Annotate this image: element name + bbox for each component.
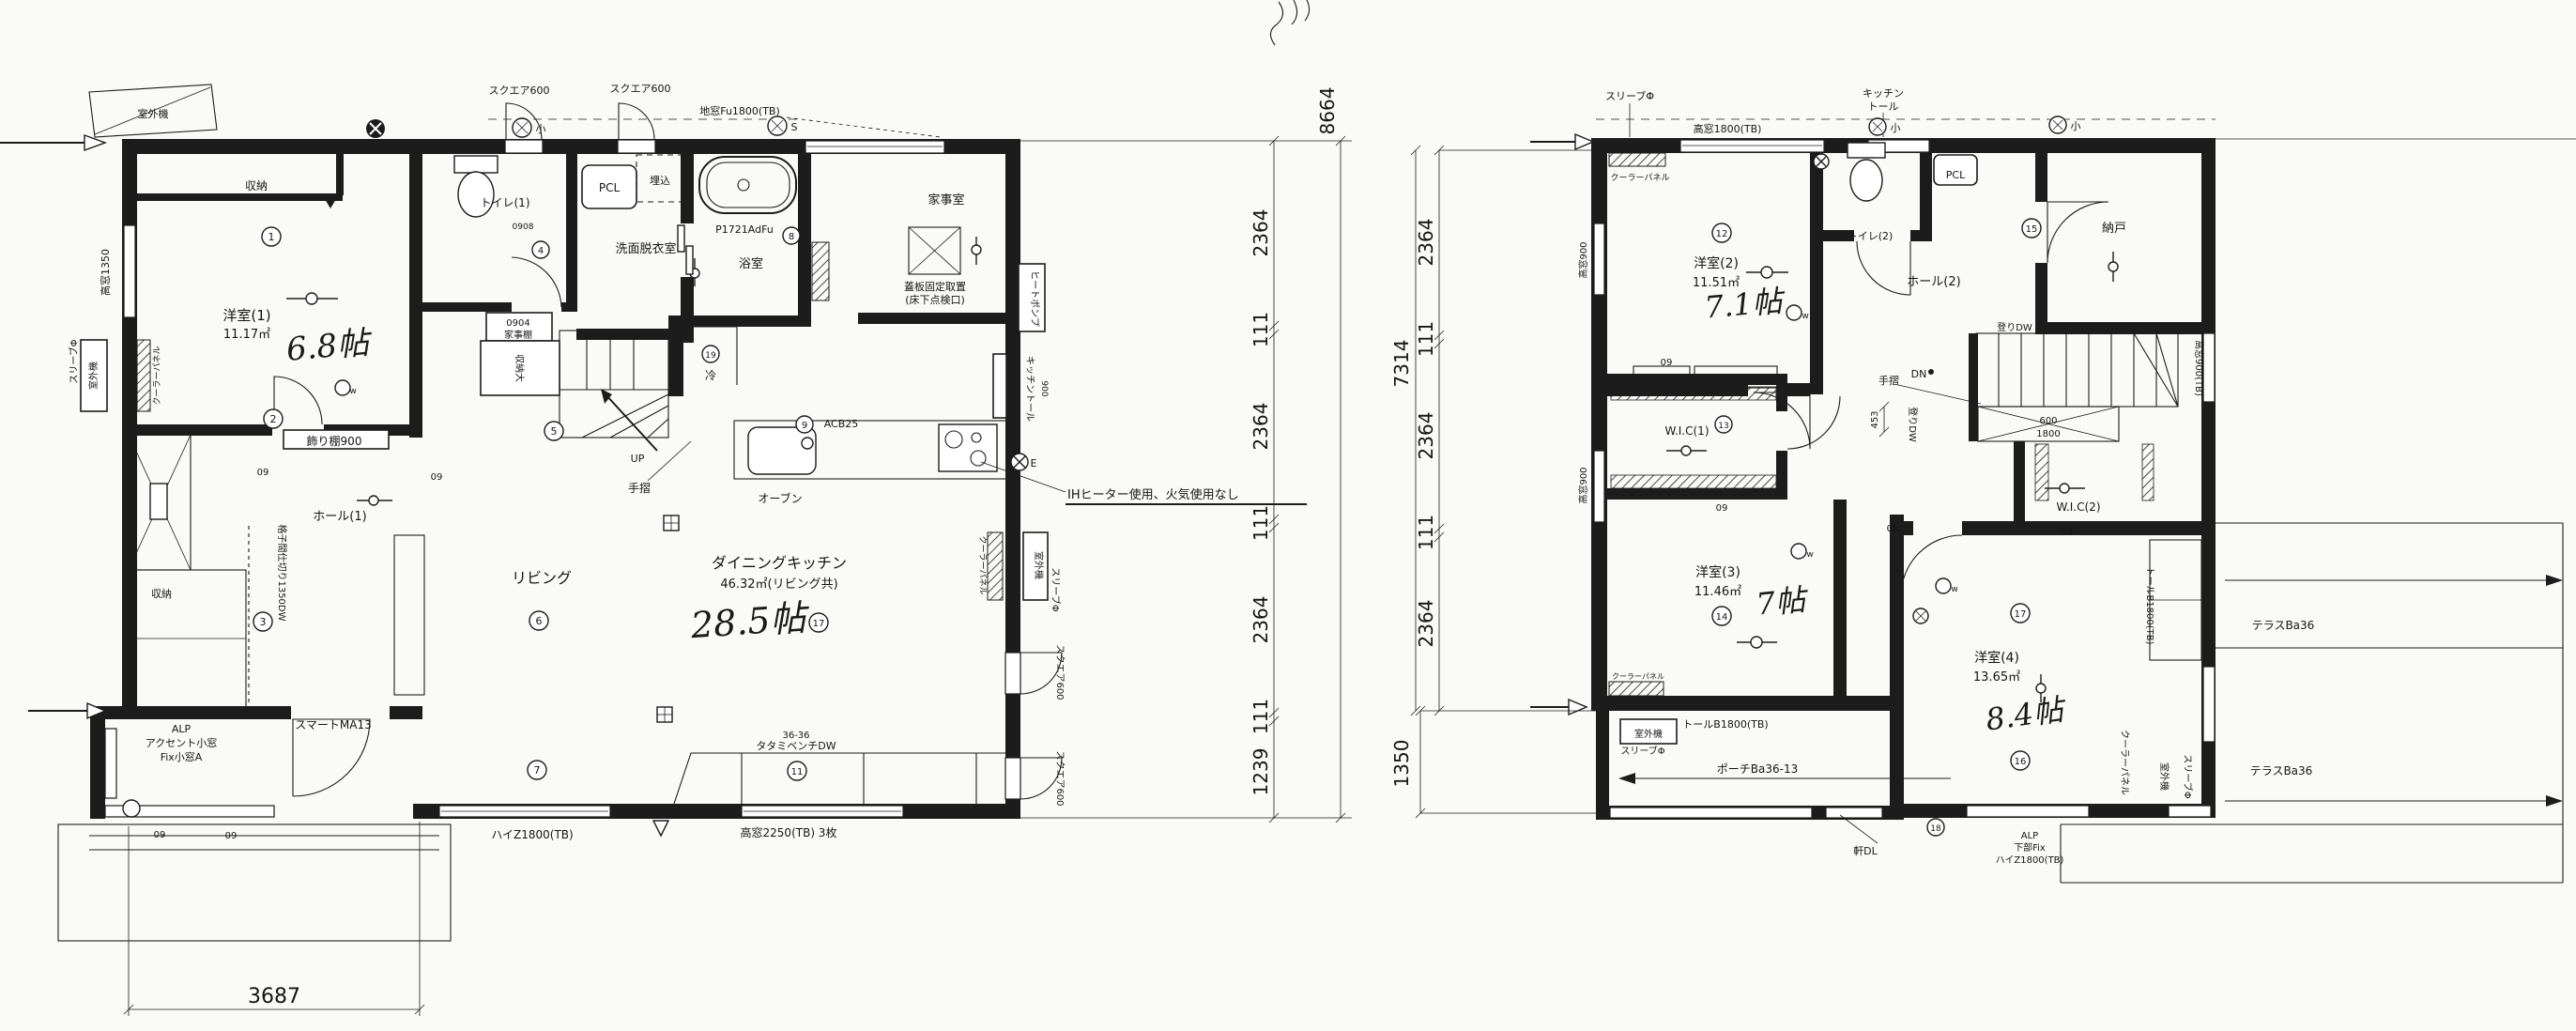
window-t900tb: [2203, 333, 2215, 402]
window-room4-side: [2203, 667, 2215, 742]
dim-2364-b: 2364: [1250, 403, 1272, 451]
dim-1239: 1239: [1250, 748, 1272, 796]
label-closet-lower: 収納: [151, 588, 172, 600]
label-sq600-b: スクエア600: [610, 83, 671, 95]
label-bath-model: P1721AdFu: [715, 223, 774, 236]
label-room3: 洋室(3): [1695, 564, 1740, 580]
label-heatpump: ヒートポンプ: [1029, 270, 1040, 327]
svg-text:w: w: [1951, 585, 1957, 594]
label-nando: 納戸: [2102, 222, 2126, 236]
label-cooler-left: クーラーパネル: [152, 346, 162, 406]
svg-text:19: 19: [705, 351, 716, 361]
vent-symbol-toilet2: [1814, 154, 1829, 169]
window-jimado: [805, 141, 944, 153]
label-outdoor-left: 室外機: [87, 362, 100, 390]
window-takamado1800: [1680, 140, 1824, 152]
label-room4-area: 13.65㎡: [1973, 670, 2020, 685]
label-takamado1350: 高窓1350: [99, 249, 112, 296]
label-t900tb: 高窓900(TB): [2193, 340, 2205, 396]
kitchen-tall-cabinet: [993, 354, 1006, 418]
door-arc-wic1: [1787, 396, 1840, 449]
label-stair-closet: 収納大: [514, 354, 526, 382]
label-nobori-b: 登りDW: [1907, 407, 1919, 442]
svg-text:11: 11: [791, 767, 804, 777]
label-cooler-2f-right: クーラーパネル: [2119, 730, 2130, 795]
svg-text:12: 12: [1716, 229, 1728, 239]
label-washroom: 洗面脱衣室: [615, 241, 676, 256]
vent-triangle: [653, 821, 668, 836]
terrace-lines: [2061, 523, 2563, 883]
svg-text:17: 17: [2015, 609, 2027, 620]
window-t900-a: [1594, 223, 1604, 295]
label-453: 453: [1870, 410, 1880, 428]
svg-text:S: S: [791, 121, 798, 133]
label-sleeve-2f-top: スリーブΦ: [1605, 89, 1654, 102]
section-arrow-2f-left: [1569, 700, 1587, 715]
label-dk: ダイニングキッチン: [712, 554, 847, 572]
tatami-bench: [674, 753, 1006, 804]
label-entry-door: スマートMA13: [295, 718, 371, 731]
label-up: UP: [631, 453, 645, 465]
svg-text:2: 2: [270, 413, 277, 425]
label-void-l: 1800: [2036, 429, 2060, 439]
bathtub: [699, 157, 796, 213]
label-room3-jo: 7帖: [1755, 581, 1811, 623]
label-sleeve-2f-b: スリーブΦ: [2182, 754, 2194, 798]
cooler-panel-1f-right: [988, 532, 1003, 600]
floor-plan-drawing: 収納 洋室(1) 11.17㎡ 6.8帖 トイレ(1) 0908 PCL 埋込 …: [0, 0, 2576, 1031]
label-mod09-h: 09: [2062, 528, 2074, 538]
label-wic2: W.I.C(2): [2056, 500, 2100, 514]
scanned-floor-plan-page: { "f1": { "rooms": { "r1_name": "洋室(1)",…: [0, 0, 2576, 1031]
label-ktall1: キッチン: [1863, 87, 1904, 100]
svg-text:5: 5: [551, 425, 558, 438]
floor-plan-1f: 収納 洋室(1) 11.17㎡ 6.8帖 トイレ(1) 0908 PCL 埋込 …: [0, 0, 1352, 1016]
label-takamado1800: 高窓1800(TB): [1694, 122, 1762, 135]
floor-hatch-box: [909, 227, 960, 274]
dim-2364-f: 2364: [1415, 600, 1437, 648]
label-hatch2: (床下点検口): [905, 293, 965, 306]
label-utility: 家事室: [928, 192, 964, 208]
window-t900-b: [1594, 451, 1604, 522]
window-room4-a: [1967, 806, 2089, 817]
svg-text:小: 小: [2071, 120, 2081, 132]
washer-hatch: [812, 242, 829, 300]
label-kitchen-tall-w: 900: [1039, 380, 1049, 396]
svg-text:18: 18: [1930, 824, 1941, 834]
label-toilet1-door: 0908: [513, 223, 534, 232]
svg-text:w: w: [1806, 550, 1813, 560]
porch-window-a: [1610, 808, 1812, 818]
label-living: リビング: [512, 569, 572, 587]
floor-outlet-symbols: [657, 515, 679, 722]
dim-2364-c: 2364: [1250, 596, 1272, 644]
svg-text:4: 4: [538, 246, 544, 256]
label-outdoor-right: 室外機: [1033, 551, 1045, 579]
label-0904: 0904: [506, 318, 529, 329]
label-mod09-b: 09: [431, 472, 443, 483]
label-porch: ポーチBa36-13: [1717, 762, 1798, 776]
cooler-panel-2f-top: [1609, 153, 1665, 166]
porch-steps-1f: [58, 824, 451, 941]
svg-text:9: 9: [802, 421, 807, 431]
dim-8664: 8664: [1316, 87, 1339, 135]
label-cooler-2f-bottom: クーラーパネル: [1612, 672, 1664, 681]
label-terrace-a: テラスBa36: [2252, 619, 2315, 632]
door-square600-c: [1005, 653, 1020, 694]
label-mod09-f: 09: [1716, 503, 1728, 514]
svg-text:7: 7: [534, 764, 541, 777]
switch-symbol-room1: [286, 293, 338, 304]
label-tall-a: トールB1800(TB): [1682, 718, 1768, 731]
svg-text:6: 6: [536, 615, 543, 627]
label-outdoor-2f-b: 室外機: [2158, 762, 2170, 791]
dimension-lines-2f: [1411, 146, 1596, 818]
dim-3687: 3687: [248, 985, 300, 1008]
wardrobe-xbox: [129, 435, 191, 570]
section-arrow-2f-top: [1575, 134, 1593, 149]
label-alp-2f: ALP: [2021, 831, 2038, 841]
label-outdoor-top: 室外機: [138, 107, 169, 120]
label-toilet2: トイレ(2): [1848, 230, 1894, 242]
svg-text:w: w: [1802, 312, 1808, 321]
floor-plan-2f: スリーブΦ 高窓1800(TB) キッチン トール クーラーパネル 洋室(2) …: [1390, 87, 2576, 883]
jimado-leader: [787, 117, 941, 137]
label-outdoor-2f: 室外機: [1634, 728, 1663, 740]
label-sq600-d: スクエア600: [1054, 750, 1066, 806]
window-swing-b: [619, 103, 654, 139]
label-room1-jo: 6.8帖: [284, 324, 375, 369]
dim-111-b: 111: [1250, 505, 1272, 541]
dim-111-e: 111: [1415, 515, 1437, 550]
svg-text:E: E: [1031, 457, 1037, 469]
label-nobori-a: 登りDW: [1997, 321, 2032, 333]
label-sq600-a: スクエア600: [489, 85, 550, 97]
wic1-shelf-bottom: [1611, 475, 1776, 488]
label-handrail-2f: 手摺: [1878, 374, 1899, 387]
label-hall1: ホール(1): [313, 510, 366, 524]
label-handrail-1f: 手摺: [628, 481, 651, 495]
label-display-shelf: 飾り棚900: [307, 434, 362, 448]
cooler-panel-1f-left: [137, 340, 150, 411]
electric-meter-symbol: [1011, 454, 1028, 470]
label-alp3-2f: ハイZ1800(TB): [1996, 855, 2064, 866]
entrance-light: [123, 800, 140, 817]
label-sleeve-right: スリーブΦ: [1050, 567, 1062, 611]
svg-text:16: 16: [2015, 757, 2027, 767]
label-umekomi: 埋込: [650, 175, 670, 187]
svg-text:1: 1: [268, 231, 275, 243]
label-closet-top: 収納: [245, 179, 268, 192]
label-dk-area: 46.32㎡(リビング共): [720, 577, 837, 592]
label-mod09-d: 09: [225, 831, 238, 841]
cooler-panel-2f-bottom: [1609, 682, 1664, 696]
label-room4-jo: 8.4帖: [1984, 691, 2069, 738]
dim-111-d: 111: [1415, 321, 1437, 357]
label-sleeve-2f-porch: スリーブΦ: [1620, 745, 1664, 757]
label-alp2-2f: 下部Fix: [2014, 841, 2046, 854]
label-haiz1800: ハイZ1800(TB): [491, 828, 573, 841]
label-mod09-e: 09: [1661, 358, 1673, 368]
circled-marks-1f: 1 2 3 4 5 6 7 8 9 17 11 19: [253, 227, 828, 780]
svg-text:15: 15: [2026, 224, 2038, 235]
label-terrace-b: テラスBa36: [2250, 764, 2313, 777]
dim-7314: 7314: [1390, 340, 1413, 388]
wic2-shelf-a: [2035, 444, 2048, 500]
label-room1: 洋室(1): [222, 307, 270, 324]
label-room4: 洋室(4): [1974, 650, 2019, 666]
label-cooler-right: クーラーパネル: [977, 536, 988, 595]
svg-text:小: 小: [536, 123, 546, 135]
dim-111-c: 111: [1250, 699, 1272, 734]
svg-text:14: 14: [1716, 612, 1728, 623]
label-jimado: 地窓Fu1800(TB): [699, 104, 780, 117]
label-room1-area: 11.17㎡: [223, 328, 270, 342]
door-arc-toilet1: [512, 257, 561, 307]
label-sleeve-left: スリーブΦ: [68, 339, 80, 383]
label-tall-b: トールB1800(TB): [2144, 566, 2154, 644]
closet-lower: [129, 570, 246, 709]
label-cooler-2f-top: クーラーパネル: [1611, 173, 1670, 183]
wic1-shelf-top: [1611, 387, 1776, 400]
label-kajidana: 家事棚: [504, 329, 532, 341]
label-bath: 浴室: [739, 256, 763, 271]
label-void-w: 600: [2039, 416, 2057, 426]
stairs-2f: [1879, 333, 2178, 441]
sliding-door-bath-b: [686, 246, 693, 274]
hall-cabinet: [394, 535, 424, 695]
label-mod09-a: 09: [257, 468, 269, 478]
door-arc-toilet2: [1857, 241, 1910, 295]
label-hatch1: 蓋板固定取置: [904, 280, 966, 293]
label-pcl-2f: PCL: [1946, 169, 1966, 181]
window-room4-b: [2169, 806, 2211, 817]
label-hall2: ホール(2): [1907, 275, 1960, 289]
label-fridge: 冷: [705, 369, 716, 382]
label-mod09-g: 09: [1887, 524, 1899, 534]
label-t900-b: 高窓900: [1577, 467, 1589, 503]
handwritten-scribble: [1270, 0, 1309, 45]
label-kitchen-tall: キッチントール: [1024, 356, 1035, 422]
door-arc-nando: [2047, 202, 2108, 263]
label-alp3: Fix小窓A: [161, 750, 203, 763]
dim-2364-e: 2364: [1415, 412, 1437, 460]
label-oven: オーブン: [758, 491, 802, 505]
switch-symbol-utility: [972, 237, 981, 265]
label-lattice: 格子間仕切り1350DW: [276, 524, 288, 621]
window-takamado1350: [124, 225, 135, 317]
label-t900-a: 高窓900: [1577, 241, 1589, 278]
dim-2364-a: 2364: [1250, 209, 1272, 257]
svg-text:3: 3: [260, 616, 267, 628]
door-square600-d: [1005, 758, 1020, 799]
tall-cabinet-room4: [2150, 540, 2201, 660]
label-mod09-c: 09: [154, 830, 166, 840]
label-pcl-1f: PCL: [599, 181, 621, 194]
label-room2-jo: 7.1帖: [1703, 283, 1787, 325]
label-alp2: アクセント小窓: [146, 736, 217, 749]
svg-text:13: 13: [1718, 422, 1728, 431]
label-takamado2250: 高窓2250(TB) 3枚: [741, 825, 837, 839]
svg-text:小: 小: [1891, 122, 1901, 134]
vent-symbol-room1: [335, 380, 350, 395]
wic2-shelf-b: [2142, 444, 2154, 500]
label-alp: ALP: [172, 723, 192, 735]
svg-text:17: 17: [813, 619, 825, 629]
label-wic1: W.I.C(1): [1664, 424, 1709, 438]
label-ktall2: トール: [1868, 100, 1899, 113]
svg-text:w: w: [349, 387, 356, 396]
window-square600-b: [618, 140, 655, 153]
svg-text:8: 8: [789, 232, 794, 242]
dim-2364-d: 2364: [1415, 219, 1437, 267]
window-square600-a: [505, 140, 543, 153]
label-toilet1: トイレ(1): [481, 196, 530, 209]
dim-111-a: 111: [1250, 312, 1272, 347]
label-dn: DN: [1911, 368, 1927, 380]
label-noki: 軒DL: [1853, 845, 1878, 857]
label-acb: ACB25: [824, 418, 859, 430]
dim-1350: 1350: [1390, 740, 1413, 788]
porch-window-b: [1826, 808, 1882, 818]
label-dk-jo: 28.5帖: [688, 596, 811, 646]
closet-door-mark: [325, 199, 336, 208]
label-room2: 洋室(2): [1694, 255, 1739, 271]
label-bench2: タタミベンチDW: [756, 740, 836, 752]
sliding-door-bath-a: [678, 225, 684, 252]
label-sq600-c: スクエア600: [1054, 644, 1066, 700]
label-ih-note: IHヒーター使用、火気使用なし: [1067, 487, 1239, 502]
entrance-side-window: [105, 729, 116, 798]
label-room3-area: 11.46㎡: [1694, 585, 1741, 599]
toilet2-fixture: [1848, 143, 1885, 201]
switch-symbol-hall1: [357, 496, 392, 505]
